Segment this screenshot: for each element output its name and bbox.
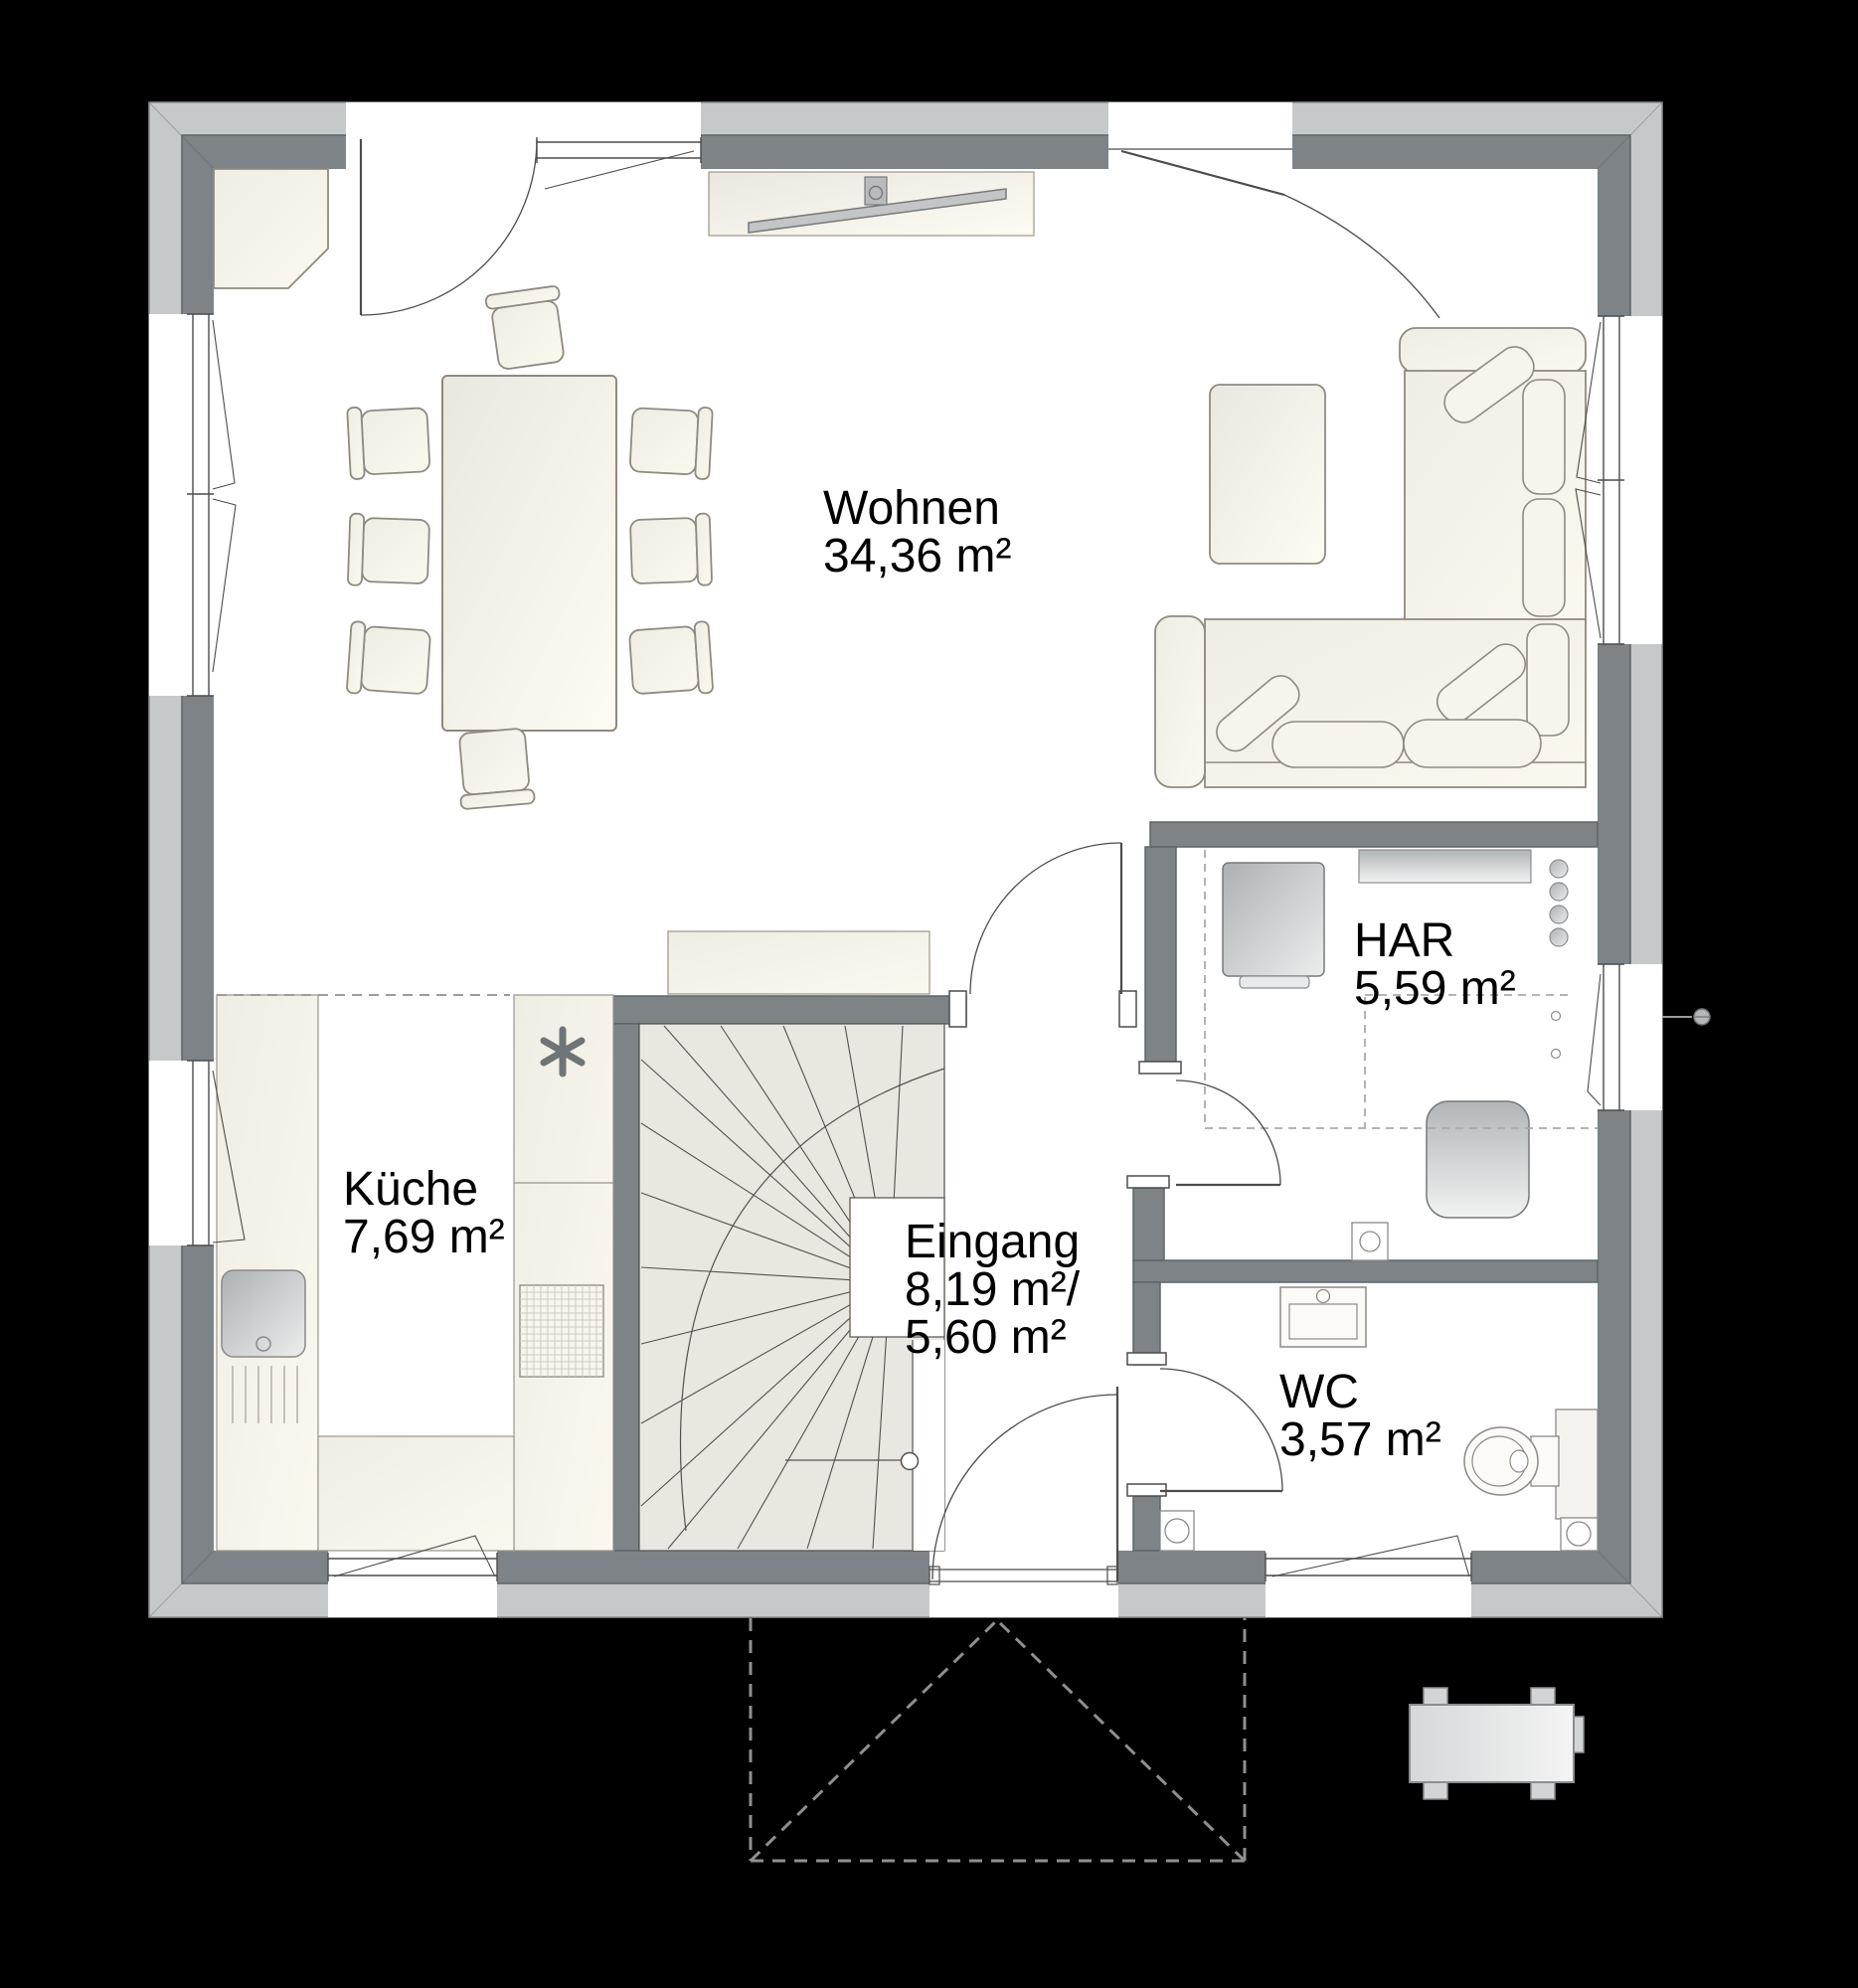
label-eingang-name: Eingang [905, 1216, 1080, 1268]
har-shelf [1359, 850, 1531, 883]
har-left-wall [1145, 847, 1176, 1072]
washbasin [1280, 1287, 1366, 1347]
label-eingang-area1: 8,19 m²/ [905, 1263, 1081, 1316]
label-wc-name: WC [1279, 1366, 1359, 1418]
canopy-outline [751, 1618, 1245, 1861]
label-kueche-name: Küche [343, 1163, 478, 1216]
label-har-area: 5,59 m² [1354, 962, 1516, 1015]
label-har-name: HAR [1354, 914, 1454, 967]
outdoor-tap-icon [1662, 1009, 1710, 1025]
kitchen-appliance [520, 1285, 603, 1377]
sideboard [668, 931, 929, 994]
har-wc-wall [1133, 1260, 1598, 1282]
chair [485, 285, 569, 371]
label-wc-area: 3,57 m² [1279, 1413, 1441, 1466]
staircase [639, 1024, 944, 1551]
stair-top-wall [613, 996, 966, 1024]
floor-plan-drawing: Wohnen 34,36 m² Küche 7,69 m² Eingang 8,… [0, 0, 1858, 1988]
chair [630, 513, 712, 587]
har-left-pier [1133, 1188, 1164, 1260]
water-heater [1427, 1101, 1529, 1218]
coffee-table [1210, 385, 1325, 564]
stair-handrail-post [902, 1453, 919, 1470]
chair [629, 621, 714, 698]
sofa-armrest-left [1155, 616, 1205, 787]
label-eingang-area2: 5,60 m² [905, 1311, 1067, 1364]
washing-machine [1223, 863, 1324, 976]
floor-plan-page: Wohnen 34,36 m² Küche 7,69 m² Eingang 8,… [0, 0, 1858, 1988]
chair [347, 404, 430, 479]
chair [455, 728, 535, 809]
wc-left-wall-lower [1133, 1496, 1160, 1551]
kitchen-counter-bottom [318, 1436, 514, 1551]
chair [629, 404, 713, 479]
chair [348, 513, 429, 587]
label-wohnen-area: 34,36 m² [823, 530, 1011, 582]
wohnen-har-wall [1150, 822, 1598, 847]
stair-left-wall [613, 1024, 639, 1551]
chair [347, 621, 431, 698]
dining-table [442, 376, 616, 731]
heat-pump-outdoor-unit [1410, 1688, 1584, 1799]
kitchen-counter-right [514, 995, 613, 1551]
label-wohnen-name: Wohnen [823, 482, 1000, 535]
label-kueche-area: 7,69 m² [343, 1211, 505, 1263]
stair-side-strip [913, 1340, 944, 1551]
